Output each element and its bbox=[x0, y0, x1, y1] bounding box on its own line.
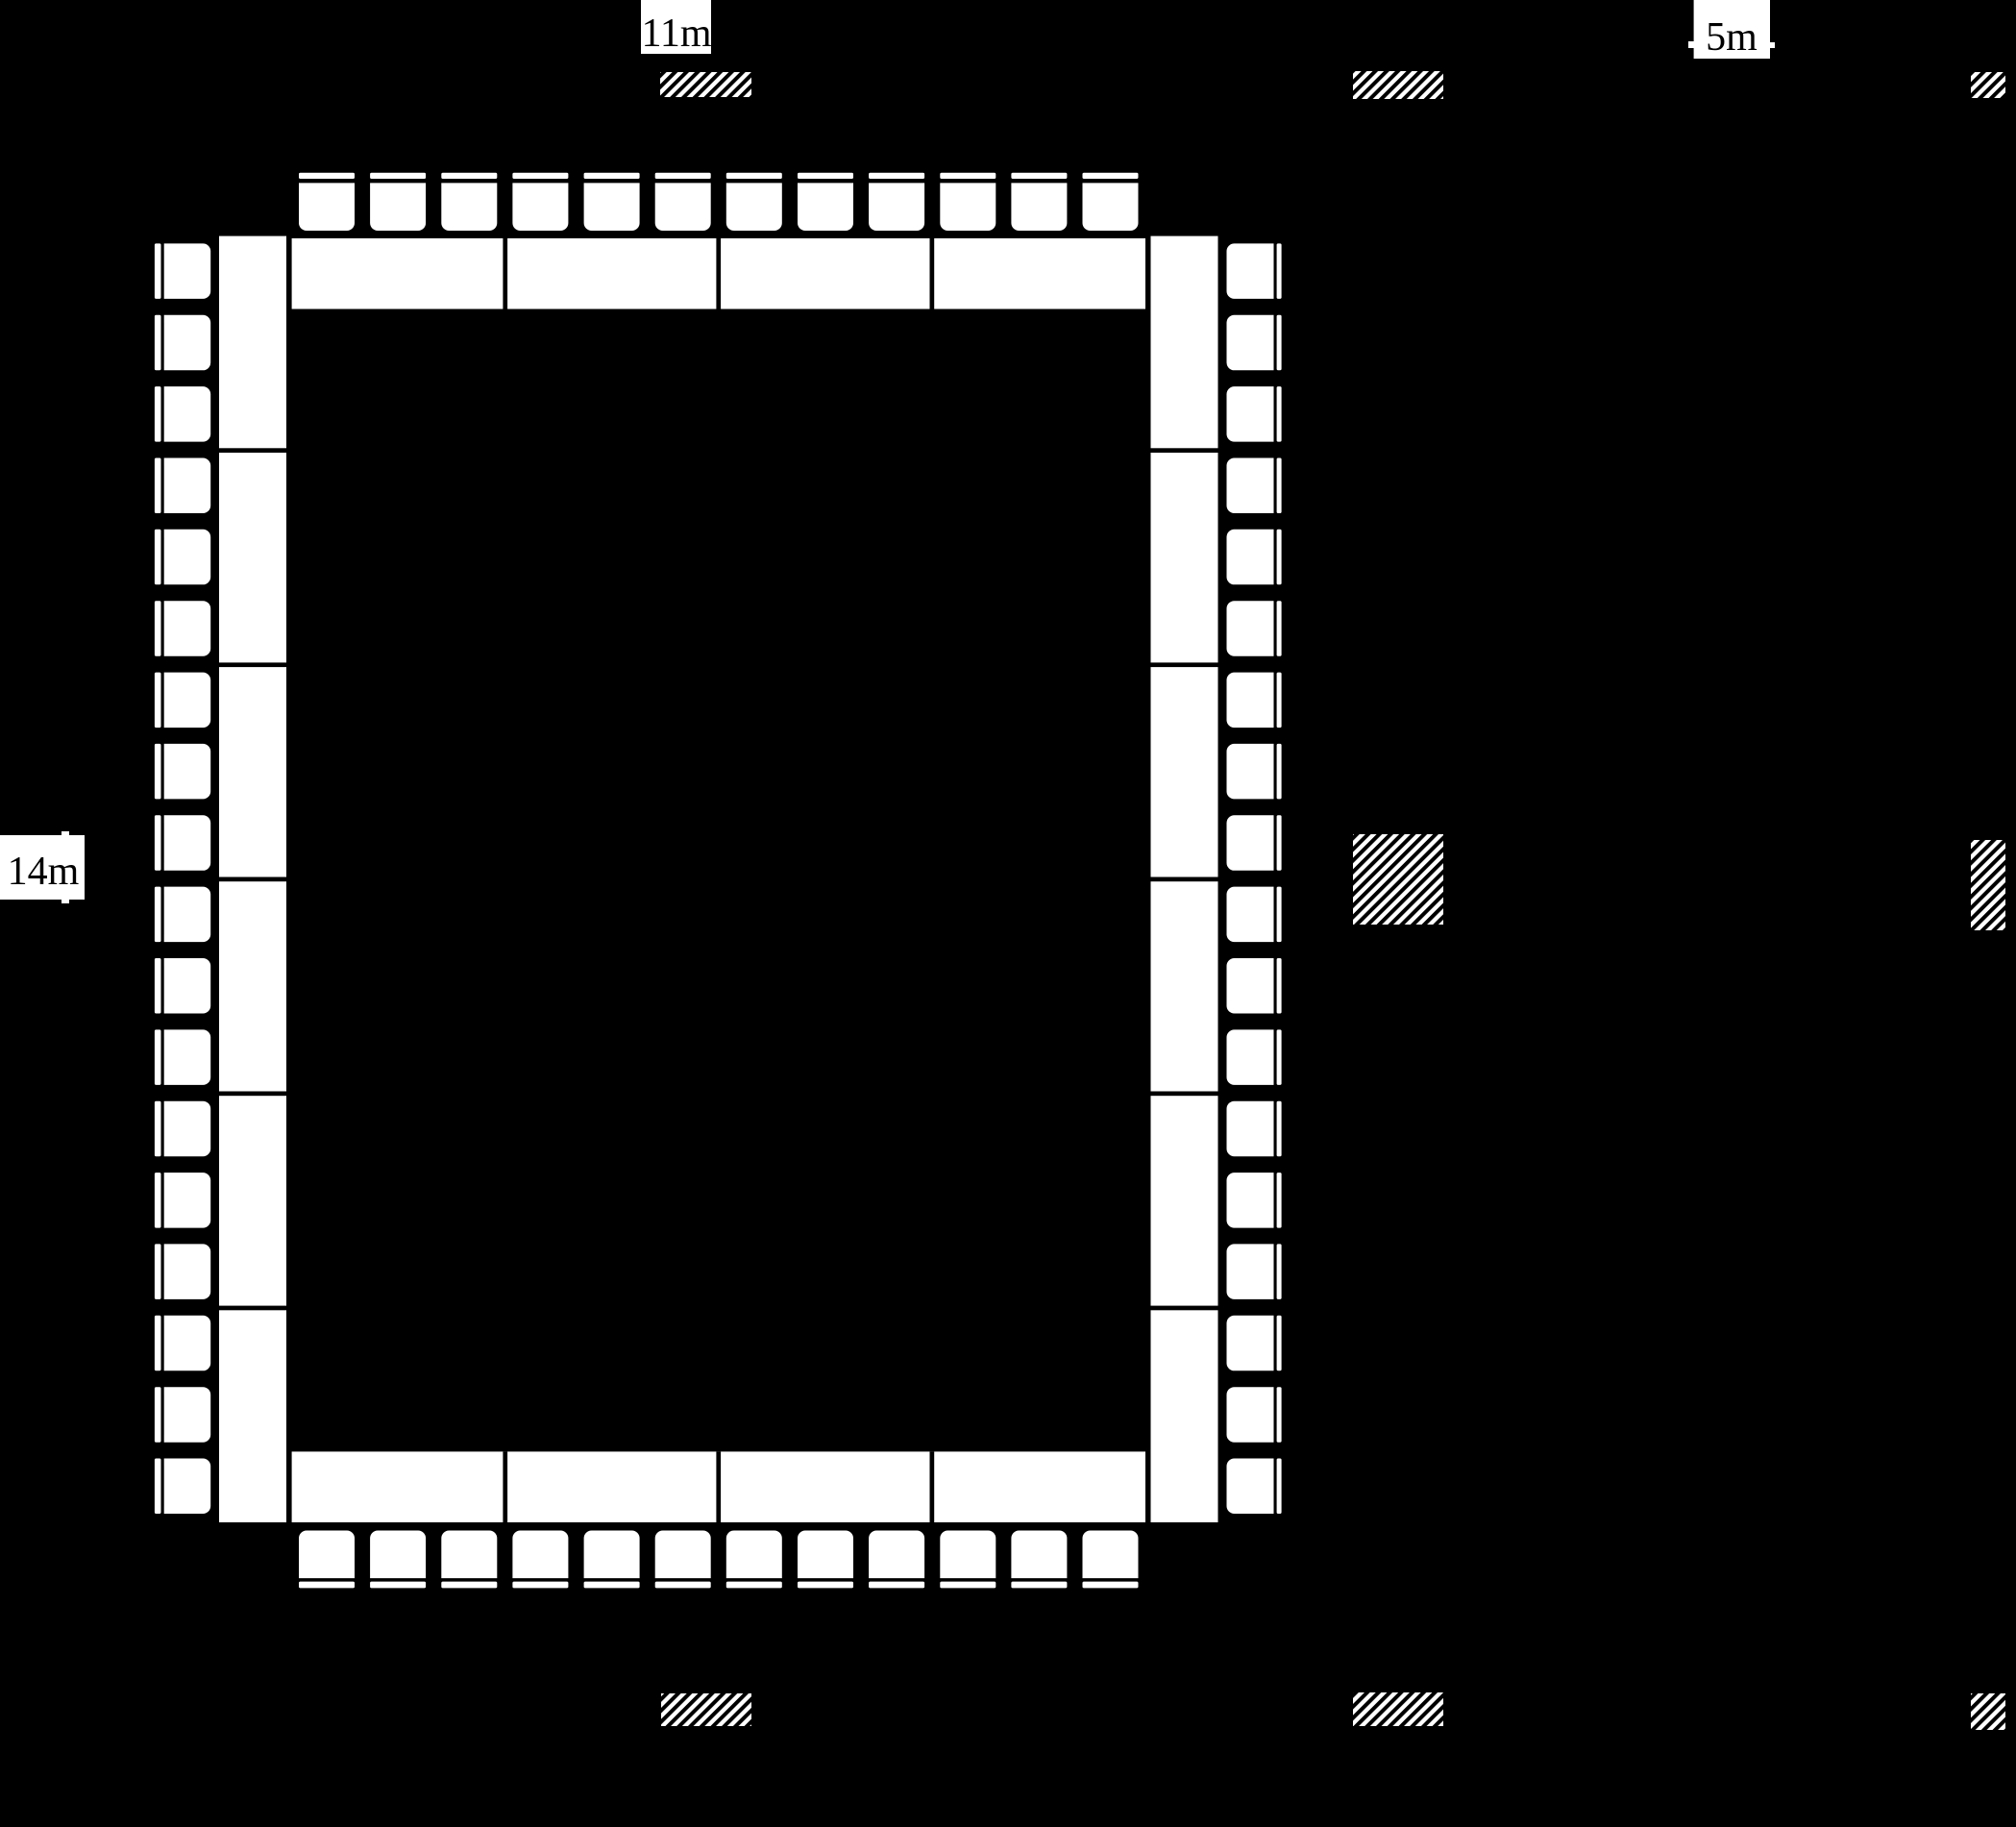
svg-text:14m: 14m bbox=[8, 850, 80, 894]
svg-text:5m: 5m bbox=[1706, 15, 1758, 60]
svg-text:11m: 11m bbox=[641, 12, 711, 56]
